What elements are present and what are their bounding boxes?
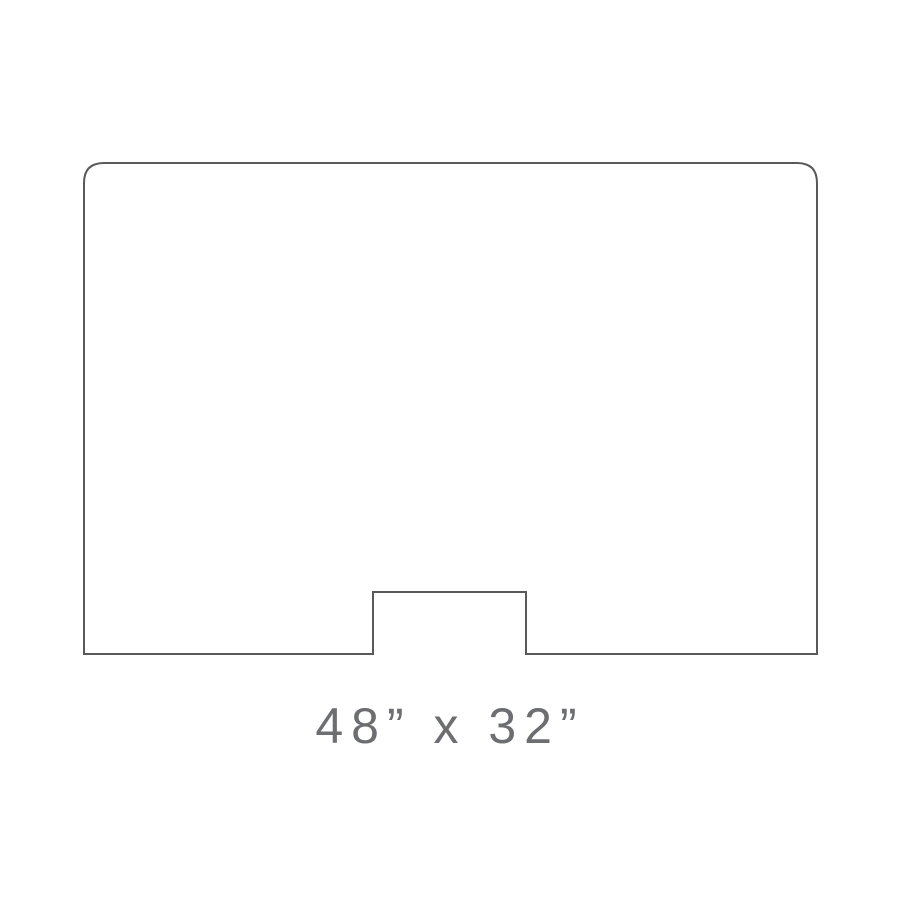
dimension-label: 48” x 32” [0,698,900,754]
panel-outline-svg [0,0,900,900]
product-dimension-diagram: 48” x 32” [0,0,900,900]
panel-outline-path [84,163,817,654]
